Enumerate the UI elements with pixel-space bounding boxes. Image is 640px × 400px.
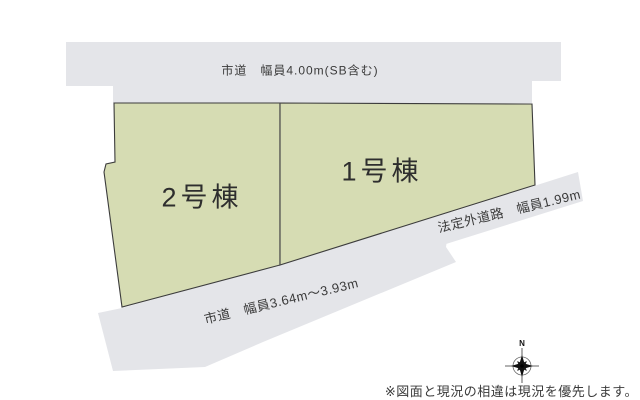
- top-road-label: 市道 幅員4.00m(SB含む): [221, 62, 378, 79]
- compass-north-label: N: [519, 339, 525, 348]
- plot-1-label: 1号棟: [341, 150, 422, 189]
- compass-center-dot: [520, 364, 524, 368]
- site-plan-diagram: 市道 幅員4.00m(SB含む) 2号棟 1号棟 市道 幅員3.64m〜3.93…: [0, 0, 640, 400]
- plot-2-label: 2号棟: [161, 176, 242, 215]
- disclaimer-text: ※図面と現況の相違は現況を優先します。: [385, 381, 638, 400]
